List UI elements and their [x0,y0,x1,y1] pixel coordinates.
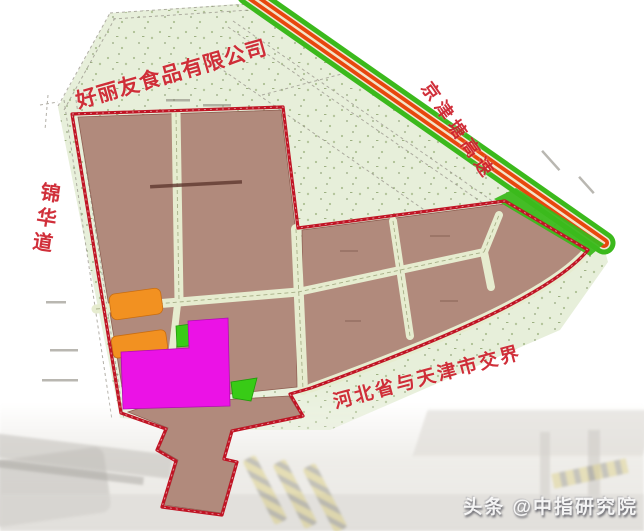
parcel-south-strip [128,396,301,513]
planning-map: 好丽友食品有限公司 京津塘高速 锦华道 河北省与天津市交界 头条 @中指研究院 [0,0,644,531]
watermark: 头条 @中指研究院 [463,492,638,519]
